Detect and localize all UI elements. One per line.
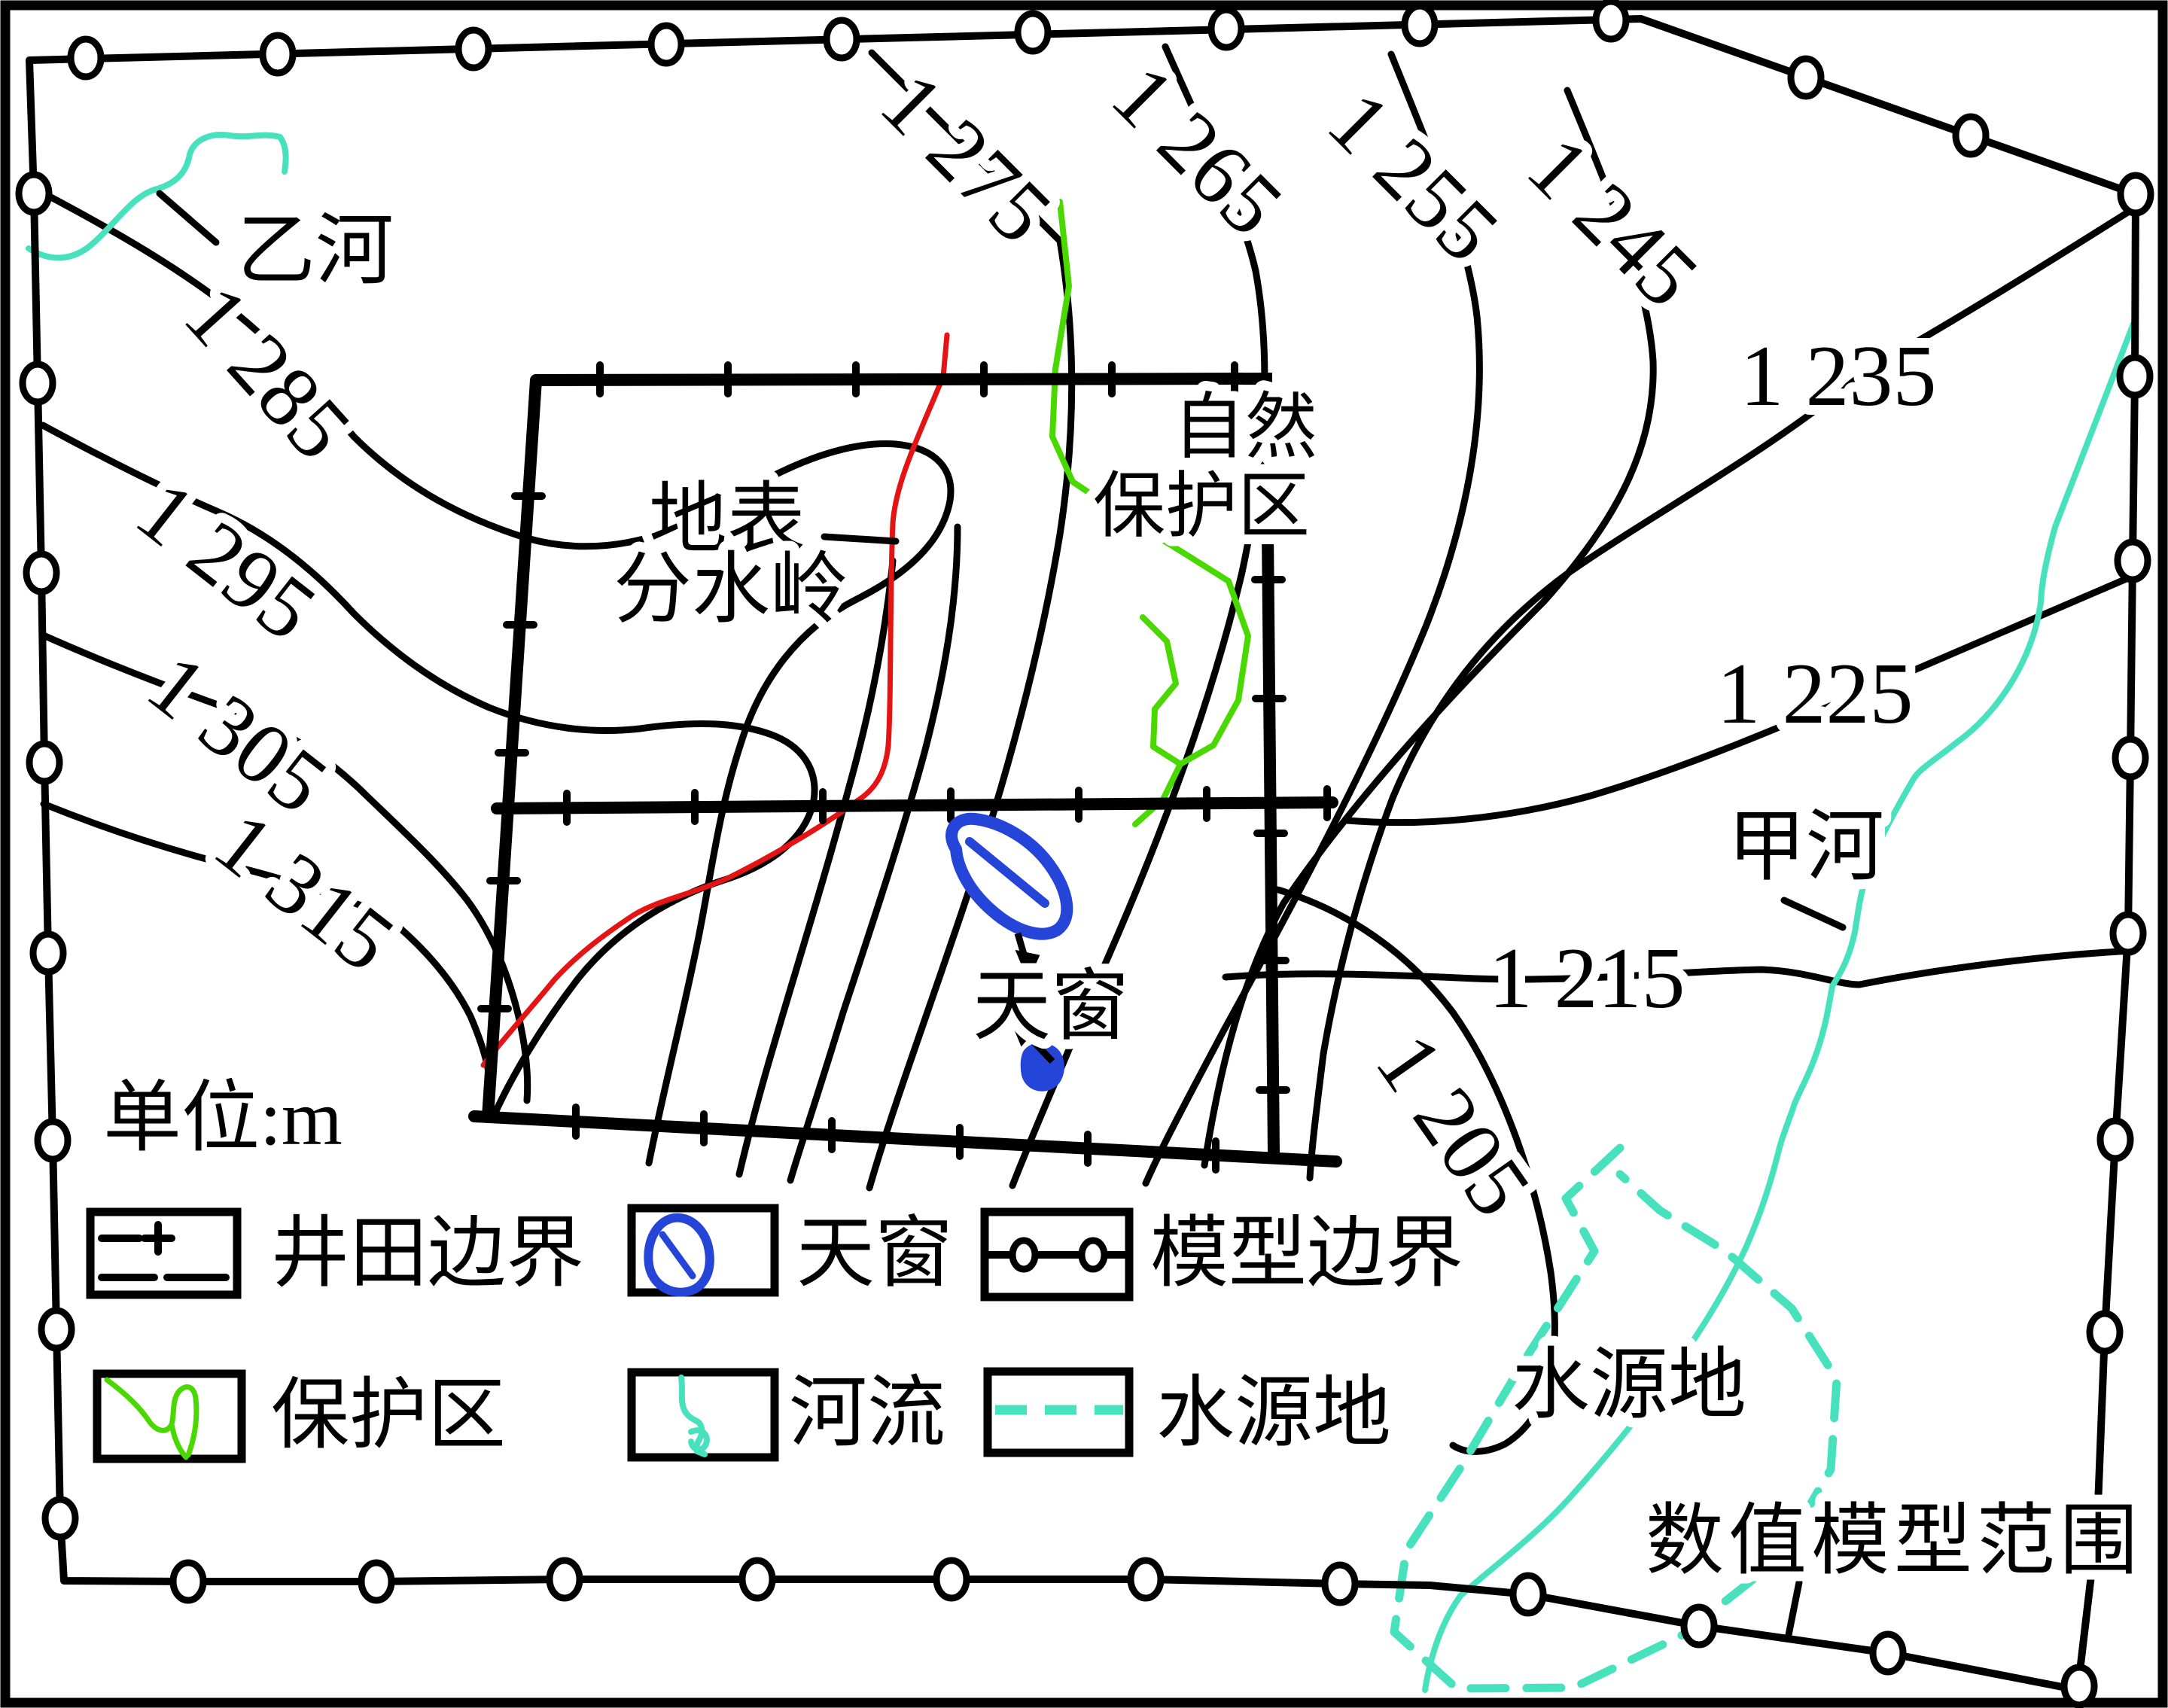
legend-item-mine-boundary: 井田边界 bbox=[90, 1210, 584, 1297]
legend-item-reserve: 保护区 bbox=[97, 1372, 506, 1459]
unit-label: 单位:m bbox=[103, 1075, 343, 1162]
watershed-label-line2: 分水岭 bbox=[614, 546, 848, 633]
reserve-label-line1: 自然 bbox=[1173, 387, 1317, 467]
mine-boundary-symbol-box bbox=[90, 1212, 237, 1295]
legend-label-mine-boundary: 井田边界 bbox=[271, 1210, 584, 1297]
legend-item-river: 河流 bbox=[632, 1370, 945, 1457]
skylight-label: 天窗 bbox=[973, 964, 1129, 1050]
water-source-label: 水源地 bbox=[1512, 1342, 1746, 1429]
river-jia-label: 甲河 bbox=[1728, 804, 1884, 891]
contour-map-figure: 1 275 1 265 1 255 1 245 1 235 1 225 1 21… bbox=[0, 0, 2168, 1708]
legend-item-water-source: 水源地 bbox=[988, 1370, 1391, 1457]
legend-item-model-boundary: 模型边界 bbox=[985, 1210, 1463, 1297]
legend-label-river: 河流 bbox=[789, 1370, 945, 1457]
model-extent-label: 数值模型范围 bbox=[1646, 1498, 2142, 1585]
legend-label-skylight: 天窗 bbox=[796, 1210, 953, 1297]
watershed-leader bbox=[824, 537, 896, 541]
contour-label-1225: 1 225 bbox=[1717, 646, 1914, 742]
legend-label-reserve: 保护区 bbox=[271, 1372, 506, 1459]
reserve-label-line2: 保护区 bbox=[1093, 466, 1310, 546]
contour-label-1235: 1 235 bbox=[1740, 328, 1937, 425]
legend-label-water-source: 水源地 bbox=[1156, 1370, 1391, 1457]
river-yi-label: 乙河 bbox=[237, 208, 394, 294]
legend-label-model-boundary: 模型边界 bbox=[1150, 1210, 1463, 1297]
contour-label-1215: 1 215 bbox=[1489, 930, 1685, 1027]
